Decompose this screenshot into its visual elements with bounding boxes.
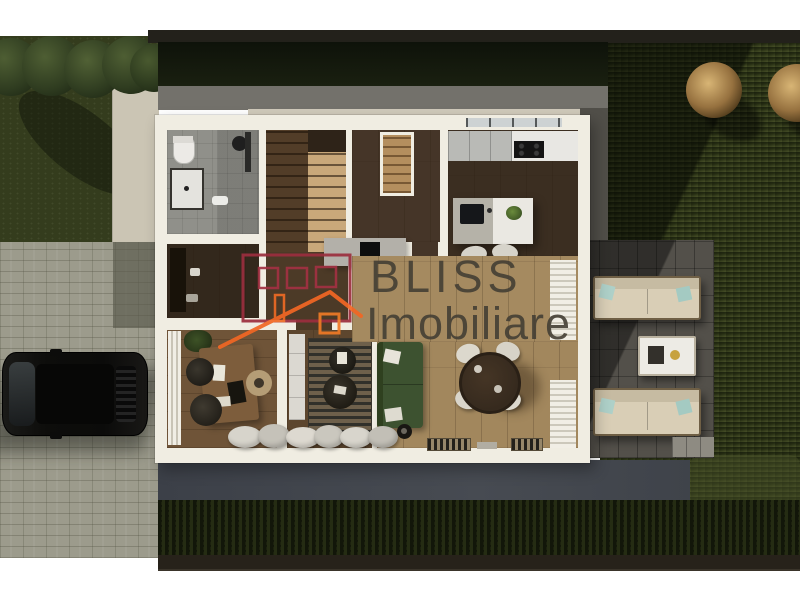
window-top — [466, 118, 562, 127]
teal-pillow — [676, 286, 693, 303]
wardrobe — [170, 248, 186, 312]
terrace-sofa — [593, 388, 701, 436]
table-plate — [494, 385, 502, 393]
hedge-top — [158, 42, 608, 87]
staircase-flight-dark — [266, 130, 308, 254]
watermark-brand-secondary: Imobiliare — [366, 301, 571, 346]
sofa-seam — [647, 289, 648, 314]
floor-vent — [511, 438, 543, 451]
table-bowl — [670, 350, 680, 360]
kitchen-cabinets — [448, 131, 512, 161]
sofa-back — [377, 342, 383, 428]
table-plate — [474, 365, 482, 373]
window-seat-cushion — [228, 426, 262, 448]
island-faucet — [487, 208, 492, 213]
sofa-seam — [383, 384, 423, 385]
shower-drain — [184, 186, 189, 191]
toilet-tank — [173, 136, 193, 143]
dining-table — [459, 352, 521, 414]
desk-chair — [186, 358, 214, 386]
closet-item — [190, 268, 200, 276]
lawn-bottom — [158, 500, 800, 557]
concrete-path-top — [158, 86, 608, 110]
copper-tree-icon — [686, 62, 742, 118]
wall-curtain — [550, 380, 576, 448]
side-table-top — [401, 428, 407, 434]
car-rear-window — [116, 366, 136, 422]
side-table — [397, 424, 412, 439]
stairwell-dark — [308, 130, 346, 152]
car-windshield — [9, 362, 35, 426]
shelf-closet — [380, 132, 414, 196]
sofa-seam — [647, 402, 648, 430]
fence-bottom — [158, 555, 800, 571]
closet-item — [186, 294, 198, 302]
car-roof — [36, 364, 114, 424]
teal-pillow — [676, 399, 693, 416]
cooktop — [514, 141, 544, 158]
house-outline-logo-icon — [213, 243, 367, 355]
office-curtain — [168, 331, 181, 445]
paver-shadow-strip — [113, 242, 158, 328]
terrace-coffee-table — [638, 336, 696, 376]
concrete-pad — [112, 86, 159, 244]
desk-paper — [213, 365, 226, 382]
island-white-top — [493, 198, 533, 244]
table-tray — [648, 346, 664, 364]
desk-chair — [190, 394, 222, 426]
shower-column — [245, 132, 251, 172]
terrace-sofa — [593, 276, 701, 320]
floor-vent — [427, 438, 471, 451]
bath-item — [212, 196, 228, 205]
floorplan-render: BLISS Imobiliare — [0, 0, 800, 600]
parked-car — [2, 352, 148, 436]
stepping-pad — [672, 437, 714, 457]
shower-tray — [170, 168, 204, 210]
sofa-pillow — [383, 348, 401, 364]
island-plant — [506, 206, 522, 220]
teal-pillow — [599, 284, 616, 301]
window-seat-cushion — [368, 426, 398, 448]
watermark-logo — [213, 243, 367, 355]
door-threshold — [477, 442, 497, 449]
car-mirror — [50, 349, 62, 356]
island-sink — [460, 204, 484, 224]
sofa-pillow — [384, 407, 403, 422]
green-sofa — [377, 342, 423, 428]
kitchen-island — [453, 198, 533, 244]
car-mirror — [50, 432, 62, 439]
teal-pillow — [599, 398, 616, 415]
wicker-chair-seat — [254, 378, 264, 388]
watermark-brand: BLISS — [370, 254, 523, 299]
wicker-chair — [246, 370, 272, 396]
